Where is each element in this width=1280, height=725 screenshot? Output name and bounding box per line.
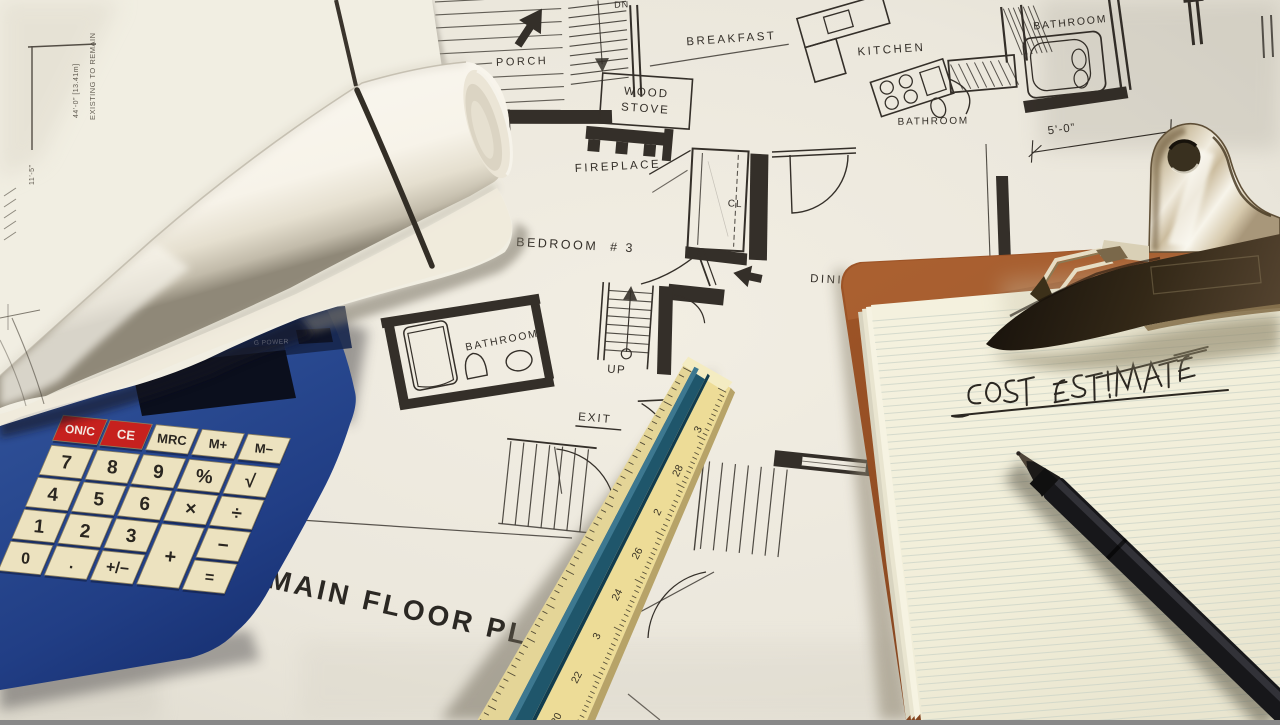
- svg-text:MRC: MRC: [156, 430, 188, 448]
- svg-text:×: ×: [184, 498, 197, 520]
- svg-text:CL: CL: [728, 198, 743, 210]
- svg-text:0: 0: [20, 550, 31, 568]
- svg-text:44’-0” [13.41m]: 44’-0” [13.41m]: [73, 63, 80, 118]
- svg-text:−: −: [216, 535, 229, 557]
- svg-text:%: %: [195, 466, 214, 489]
- svg-text:M+: M+: [208, 436, 228, 453]
- svg-text:UP: UP: [607, 364, 627, 377]
- svg-text:+: +: [163, 546, 177, 569]
- svg-text:M−: M−: [254, 440, 274, 457]
- svg-text:7: 7: [60, 452, 73, 474]
- svg-text:=: =: [204, 569, 215, 587]
- svg-text:CE: CE: [116, 426, 136, 443]
- svg-text:9: 9: [152, 461, 165, 483]
- svg-text:3: 3: [125, 525, 138, 547]
- svg-text:2: 2: [79, 521, 92, 543]
- svg-text:DN: DN: [614, 0, 629, 10]
- svg-text:BATHROOM: BATHROOM: [897, 116, 969, 128]
- svg-text:PORCH: PORCH: [496, 55, 549, 69]
- svg-text:8: 8: [106, 457, 119, 479]
- svg-text:6: 6: [138, 493, 151, 515]
- svg-text:÷: ÷: [230, 503, 243, 525]
- svg-text:11’-5”: 11’-5”: [29, 164, 36, 185]
- svg-text:EXISTING TO REMAIN: EXISTING TO REMAIN: [88, 33, 97, 121]
- svg-text:+/−: +/−: [105, 559, 130, 578]
